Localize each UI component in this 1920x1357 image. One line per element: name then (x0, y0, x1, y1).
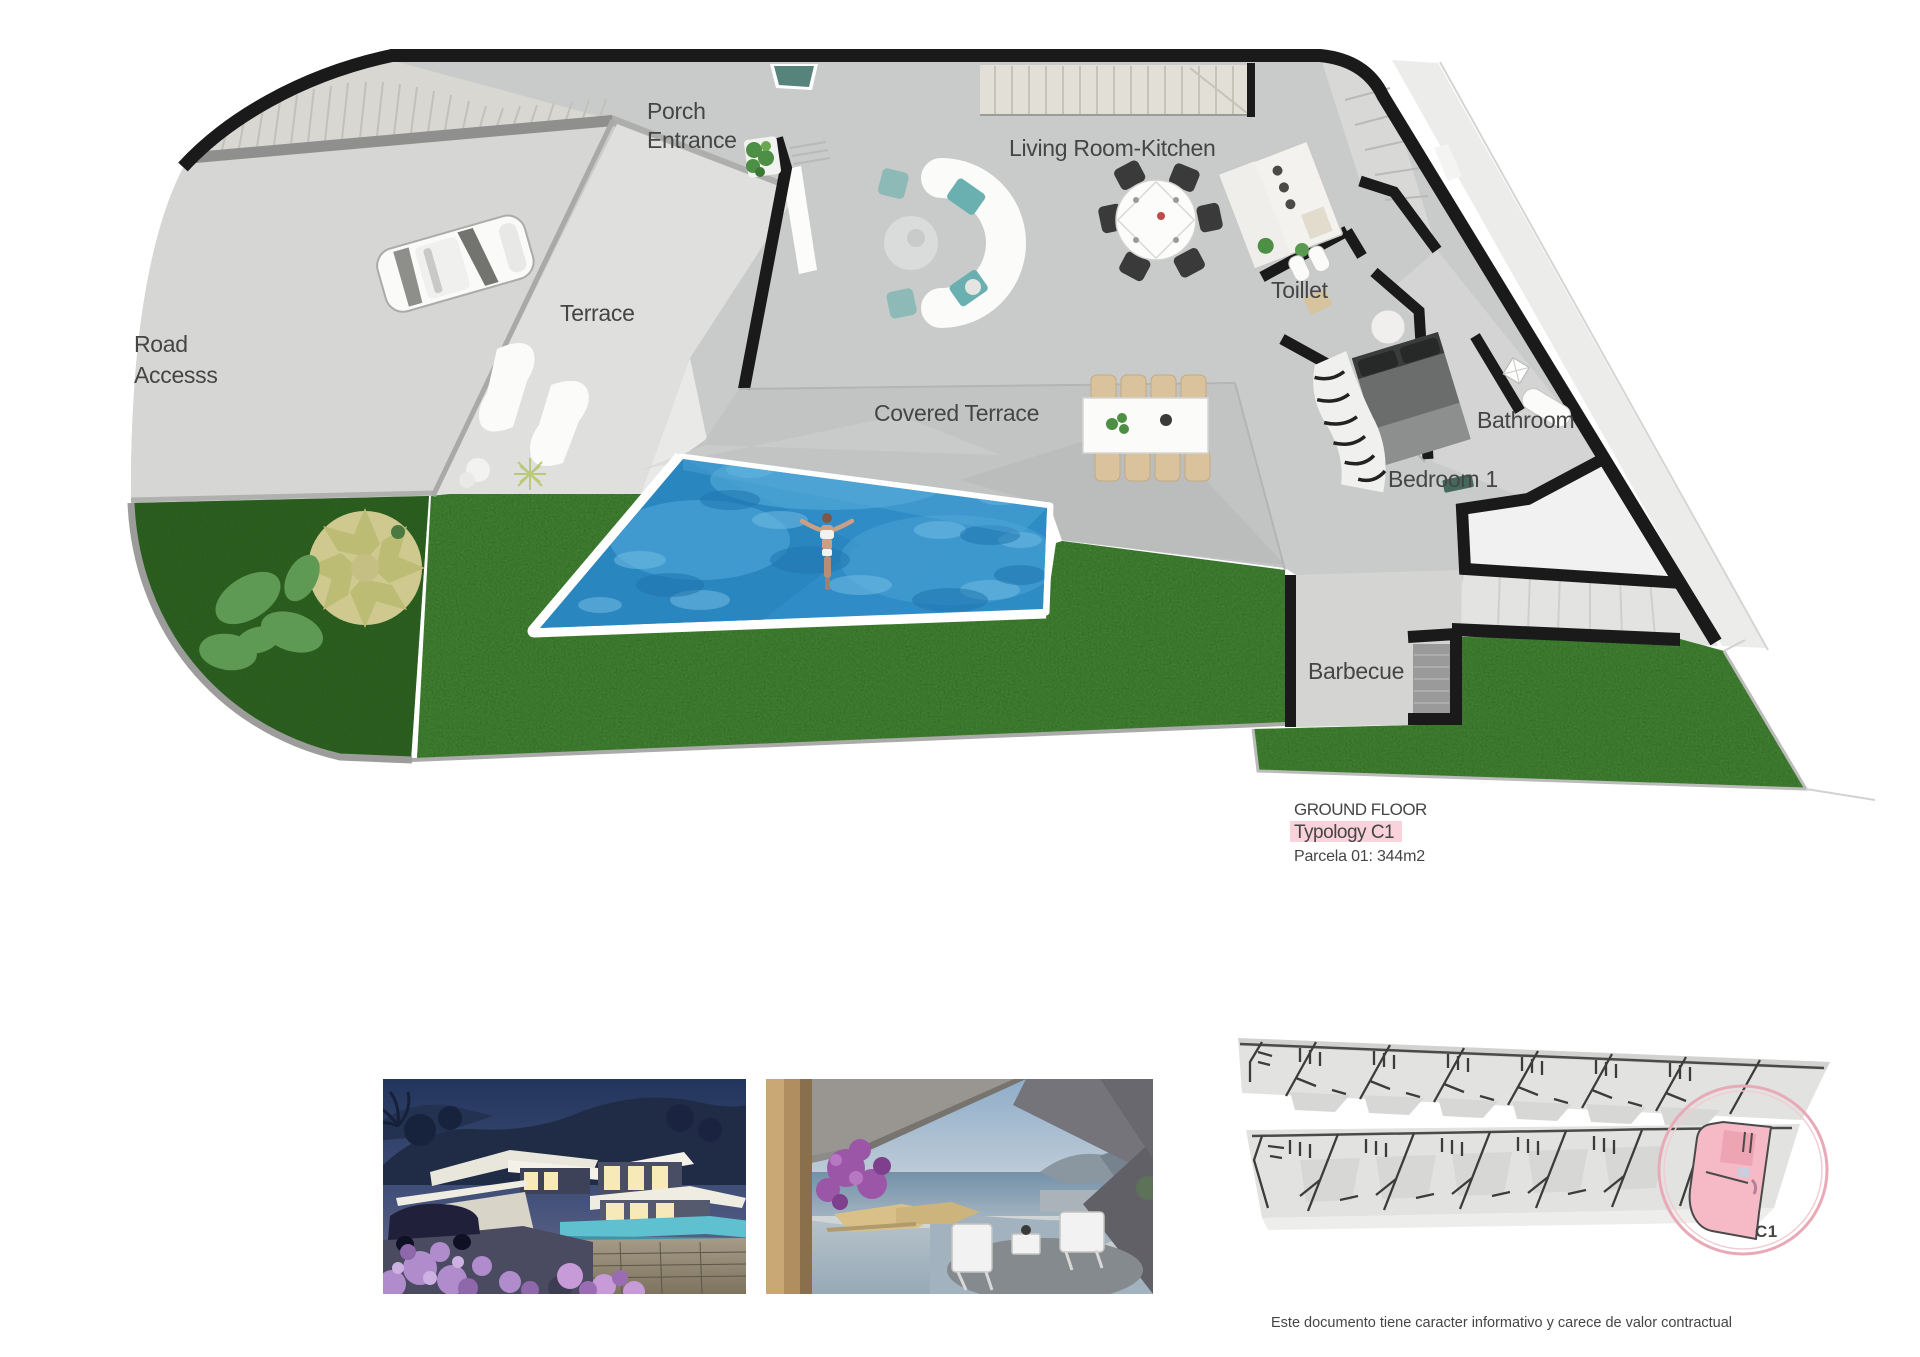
svg-text:Porch: Porch (647, 98, 706, 124)
svg-text:C1: C1 (1755, 1222, 1778, 1241)
svg-text:Road: Road (134, 331, 188, 357)
svg-text:Covered Terrace: Covered Terrace (874, 400, 1039, 426)
svg-text:Este documento tiene caracter: Este documento tiene caracter informativ… (1271, 1315, 1732, 1331)
svg-text:Entrance: Entrance (647, 127, 737, 153)
svg-text:Bathroom: Bathroom (1477, 407, 1574, 433)
svg-text:Living Room-Kitchen: Living Room-Kitchen (1009, 135, 1216, 161)
svg-text:Toillet: Toillet (1271, 277, 1329, 303)
svg-text:Parcela 01: 344m2: Parcela 01: 344m2 (1294, 848, 1425, 865)
svg-text:Accesss: Accesss (134, 362, 218, 388)
svg-text:GROUND FLOOR: GROUND FLOOR (1294, 800, 1427, 819)
svg-text:Barbecue: Barbecue (1308, 658, 1404, 684)
svg-text:Bedroom 1: Bedroom 1 (1388, 466, 1498, 492)
svg-text:Terrace: Terrace (560, 300, 635, 326)
svg-text:Typology C1: Typology C1 (1294, 822, 1394, 843)
